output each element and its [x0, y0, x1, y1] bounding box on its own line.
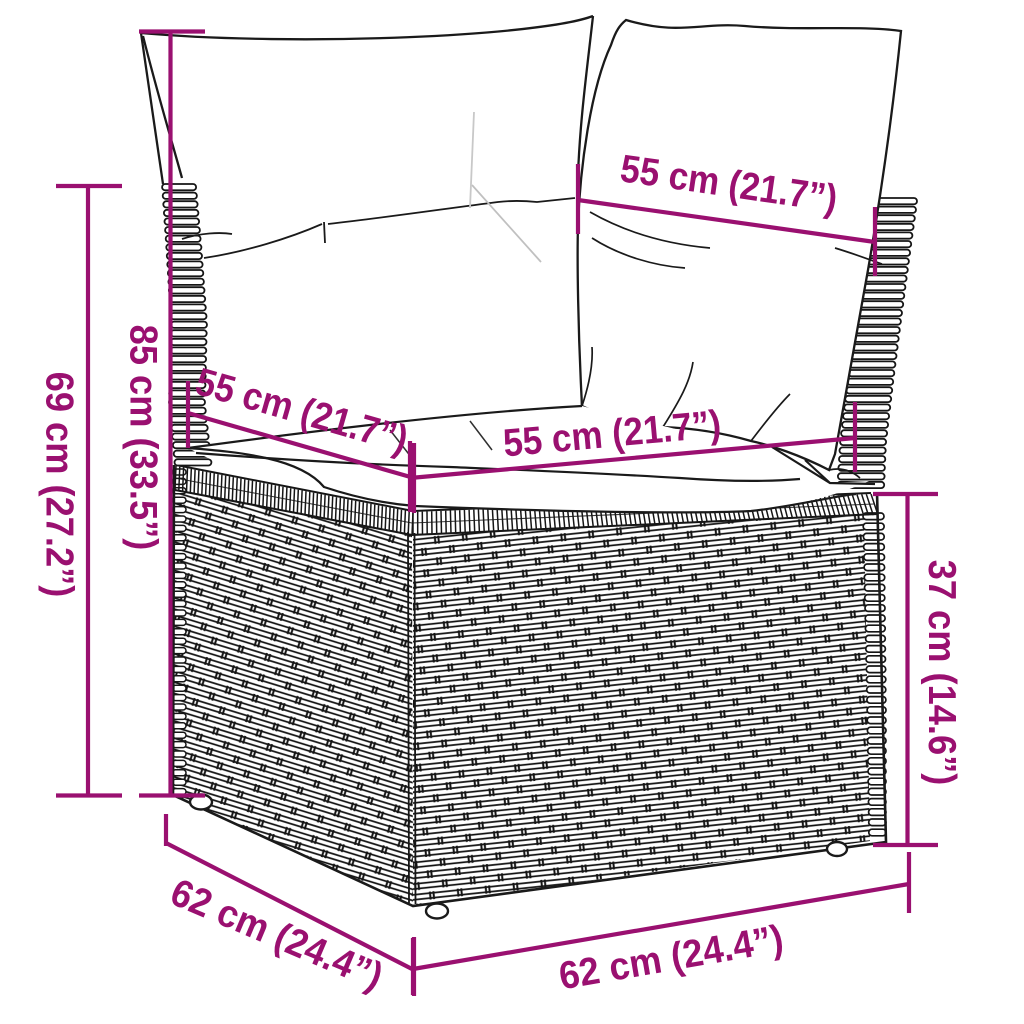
svg-text:69 cm (27.2”): 69 cm (27.2”): [38, 372, 81, 598]
svg-text:85 cm (33.5”): 85 cm (33.5”): [122, 325, 165, 551]
svg-text:37 cm (14.6”): 37 cm (14.6”): [921, 560, 964, 786]
